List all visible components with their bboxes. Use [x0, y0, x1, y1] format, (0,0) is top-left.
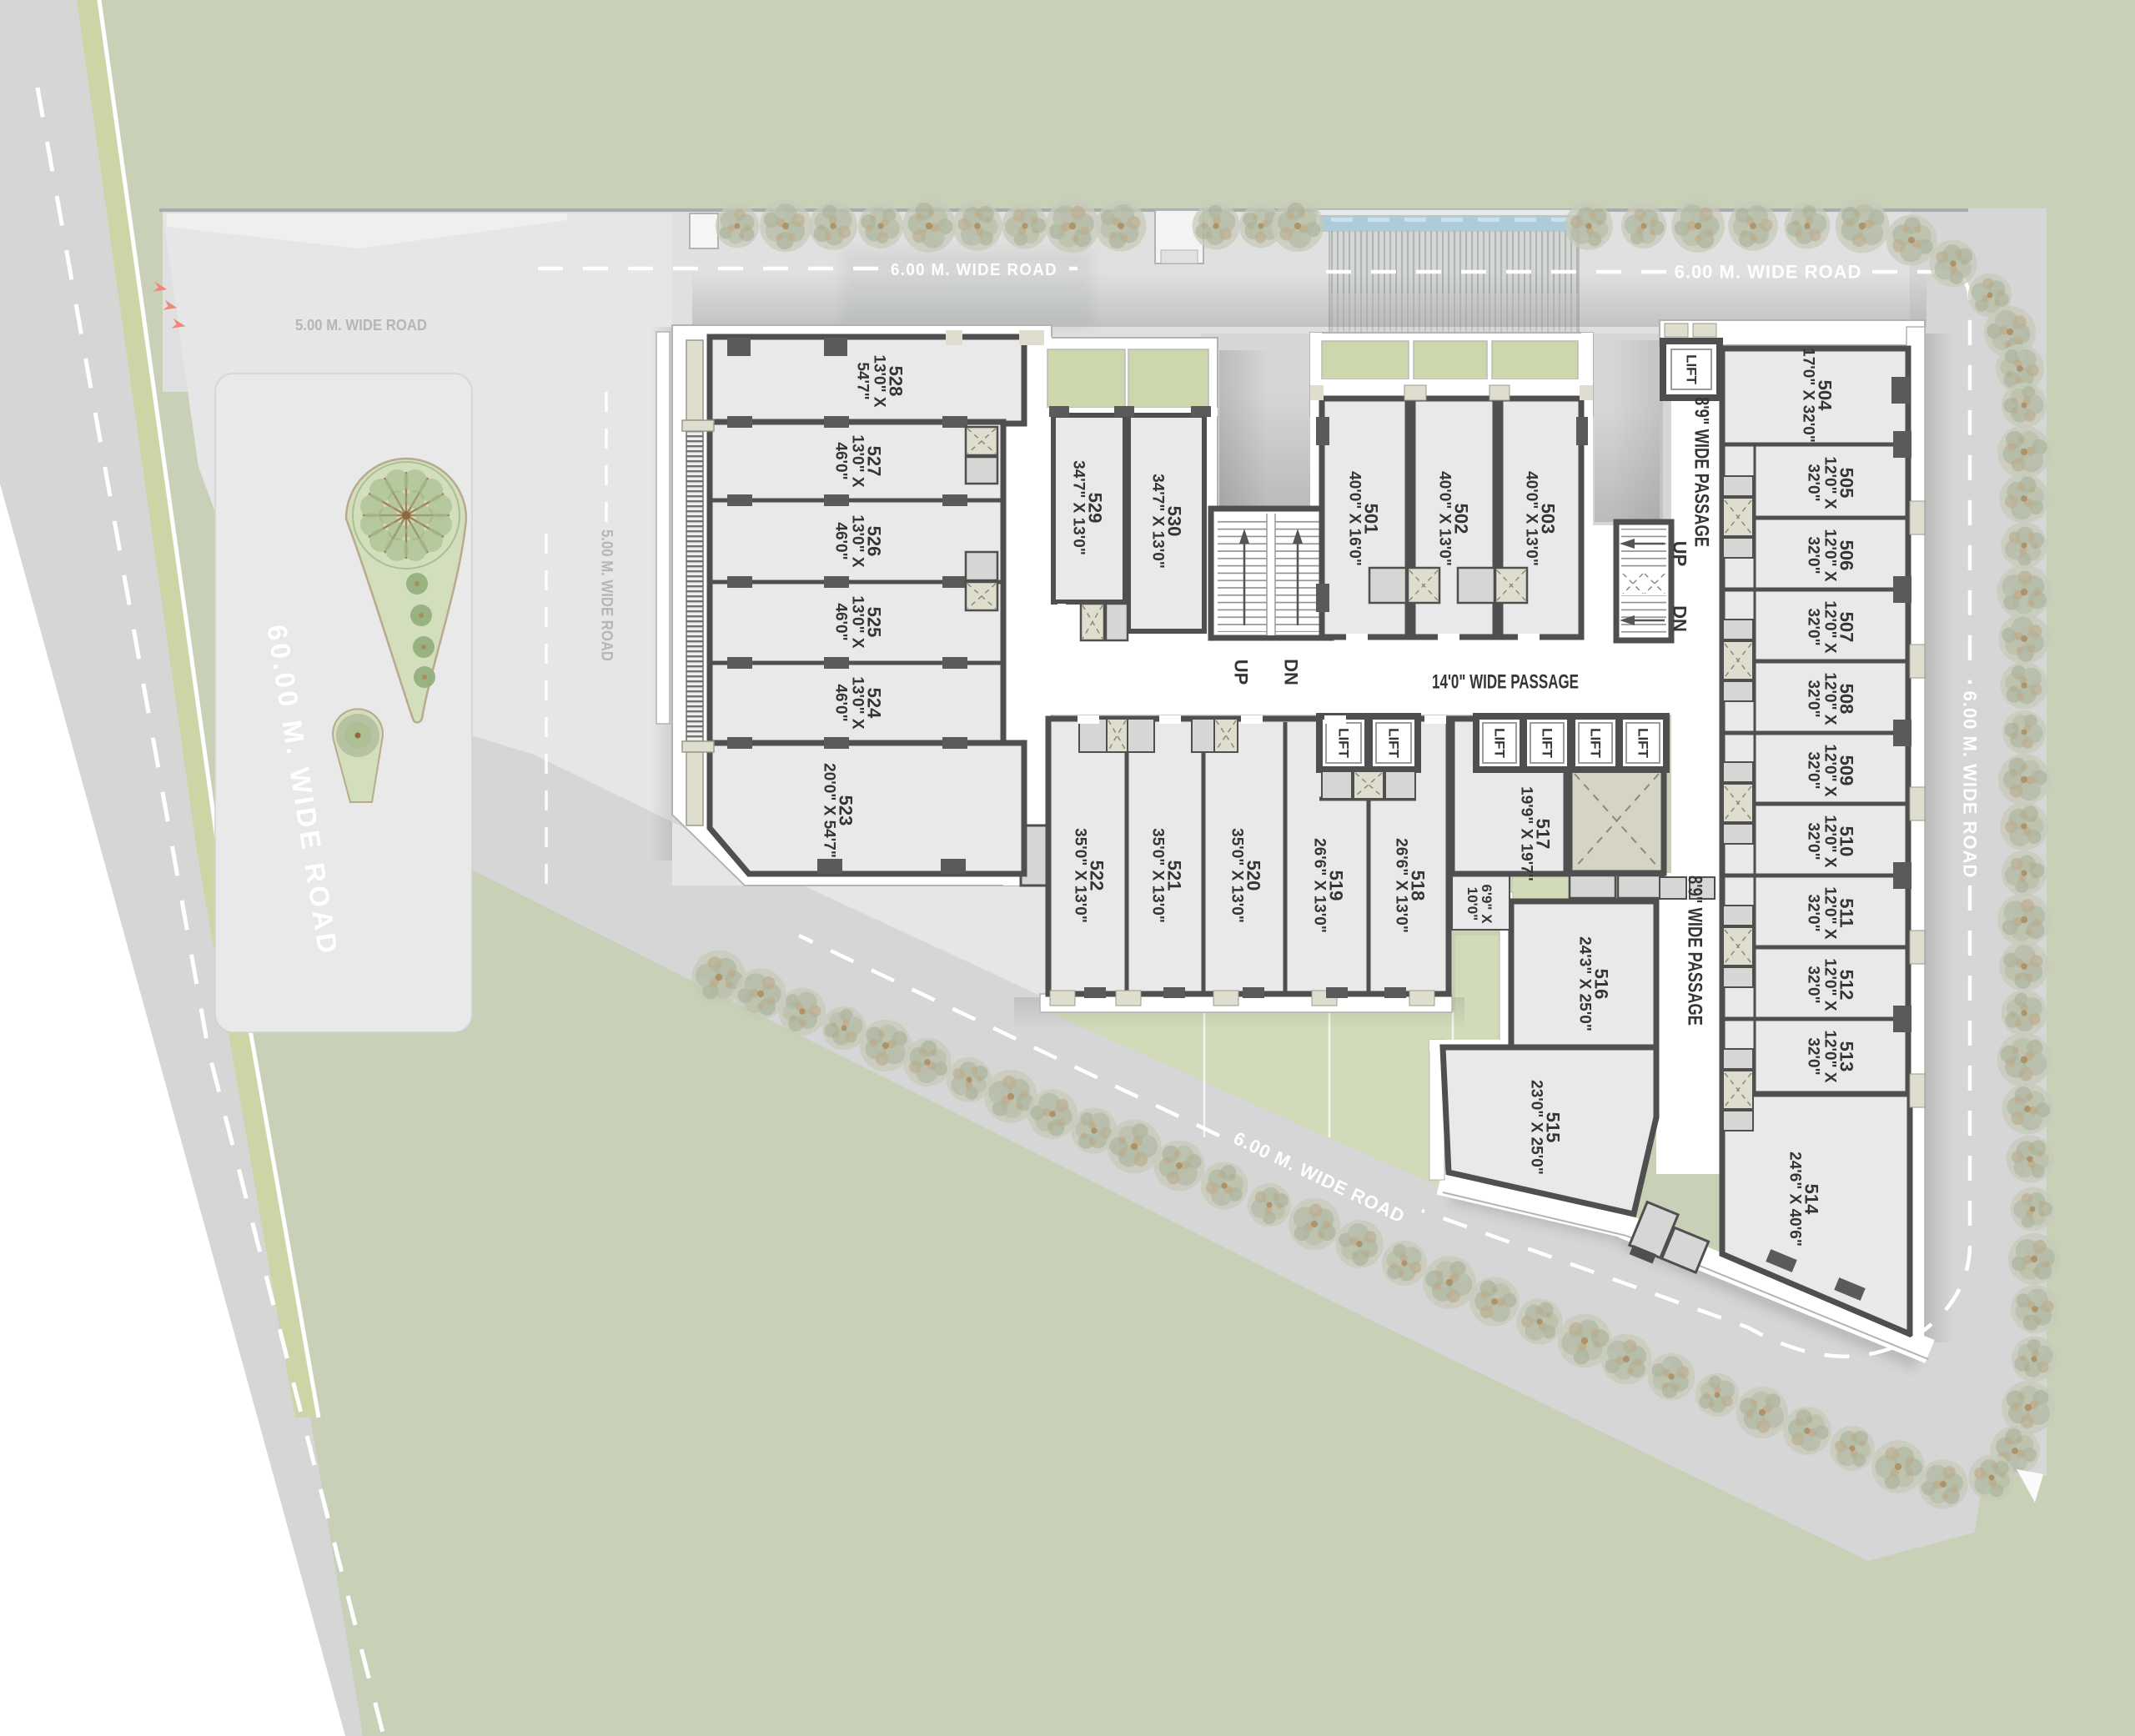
svg-text:35'0" X 13'0": 35'0" X 13'0" [1228, 828, 1246, 923]
svg-text:34'7" X 13'0": 34'7" X 13'0" [1149, 474, 1167, 569]
svg-text:32'0": 32'0" [1805, 966, 1822, 1003]
svg-text:12'0" X: 12'0" X [1821, 886, 1839, 940]
svg-text:LIFT: LIFT [1684, 354, 1700, 384]
svg-text:46'0": 46'0" [832, 603, 850, 640]
svg-text:13'0" X: 13'0" X [849, 434, 867, 488]
svg-text:32'0": 32'0" [1805, 894, 1822, 931]
svg-text:24'6" X 40'6": 24'6" X 40'6" [1786, 1151, 1804, 1247]
svg-text:5.00 M. WIDE ROAD: 5.00 M. WIDE ROAD [598, 529, 615, 661]
svg-text:35'0" X 13'0": 35'0" X 13'0" [1149, 828, 1167, 923]
svg-text:12'0" X: 12'0" X [1821, 672, 1839, 725]
svg-text:34'7" X 13'0": 34'7" X 13'0" [1070, 460, 1088, 555]
svg-text:12'0" X: 12'0" X [1821, 456, 1839, 509]
svg-text:8'9" WIDE PASSAGE: 8'9" WIDE PASSAGE [1684, 876, 1706, 1026]
svg-text:23'0" X 25'0": 23'0" X 25'0" [1528, 1080, 1545, 1175]
svg-text:13'0" X: 13'0" X [849, 595, 867, 649]
svg-text:12'0" X: 12'0" X [1821, 744, 1839, 797]
svg-text:54'7": 54'7" [854, 362, 872, 399]
svg-text:35'0" X 13'0": 35'0" X 13'0" [1072, 828, 1089, 923]
svg-text:26'6" X 13'0": 26'6" X 13'0" [1393, 838, 1410, 933]
svg-text:5.00 M. WIDE ROAD: 5.00 M. WIDE ROAD [295, 317, 427, 334]
svg-text:46'0": 46'0" [832, 522, 850, 559]
svg-text:32'0": 32'0" [1805, 608, 1822, 645]
svg-text:46'0": 46'0" [832, 684, 850, 721]
svg-text:LIFT: LIFT [1540, 728, 1555, 758]
svg-text:40'0" X 16'0": 40'0" X 16'0" [1346, 471, 1364, 566]
svg-text:12'0" X: 12'0" X [1821, 1030, 1839, 1083]
svg-text:UP: UP [1231, 660, 1252, 685]
svg-text:32'0": 32'0" [1805, 680, 1822, 717]
svg-text:17'0" X 32'0": 17'0" X 32'0" [1800, 348, 1817, 443]
svg-text:19'9" X 19'7": 19'9" X 19'7" [1518, 786, 1535, 881]
svg-text:6.00 M. WIDE ROAD: 6.00 M. WIDE ROAD [1675, 262, 1862, 283]
svg-text:12'0" X: 12'0" X [1821, 529, 1839, 582]
svg-text:46'0": 46'0" [832, 442, 850, 479]
svg-text:DN: DN [1281, 659, 1302, 685]
svg-text:8'9" WIDE PASSAGE: 8'9" WIDE PASSAGE [1690, 397, 1713, 547]
svg-text:32'0": 32'0" [1805, 751, 1822, 789]
svg-text:LIFT: LIFT [1492, 728, 1508, 758]
svg-text:12'0" X: 12'0" X [1821, 958, 1839, 1011]
svg-text:32'0": 32'0" [1805, 464, 1822, 501]
svg-text:24'3" X 25'0": 24'3" X 25'0" [1576, 936, 1594, 1031]
svg-text:32'0": 32'0" [1805, 1037, 1822, 1075]
svg-text:26'6" X 13'0": 26'6" X 13'0" [1311, 838, 1329, 933]
svg-text:13'0" X: 13'0" X [871, 354, 888, 408]
svg-text:6.00 M. WIDE ROAD: 6.00 M. WIDE ROAD [891, 261, 1057, 279]
svg-text:40'0" X 13'0": 40'0" X 13'0" [1523, 471, 1540, 566]
svg-text:12'0" X: 12'0" X [1821, 815, 1839, 868]
svg-text:12'0" X: 12'0" X [1821, 600, 1839, 654]
svg-text:UP: UP [1670, 541, 1690, 567]
svg-text:LIFT: LIFT [1635, 728, 1651, 758]
svg-text:10'0": 10'0" [1464, 887, 1480, 921]
svg-text:LIFT: LIFT [1386, 728, 1402, 758]
svg-text:40'0" X 13'0": 40'0" X 13'0" [1436, 471, 1454, 566]
svg-text:LIFT: LIFT [1336, 728, 1352, 758]
svg-text:32'0": 32'0" [1805, 536, 1822, 574]
svg-text:14'0" WIDE PASSAGE: 14'0" WIDE PASSAGE [1432, 671, 1579, 694]
svg-text:6.00 M. WIDE ROAD: 6.00 M. WIDE ROAD [1960, 691, 1981, 879]
svg-text:LIFT: LIFT [1588, 728, 1604, 758]
svg-text:13'0" X: 13'0" X [849, 514, 867, 568]
svg-text:13'0" X: 13'0" X [849, 676, 867, 730]
svg-text:32'0": 32'0" [1805, 822, 1822, 860]
svg-text:DN: DN [1670, 605, 1690, 632]
svg-text:20'0" X 54'7": 20'0" X 54'7" [821, 763, 838, 858]
